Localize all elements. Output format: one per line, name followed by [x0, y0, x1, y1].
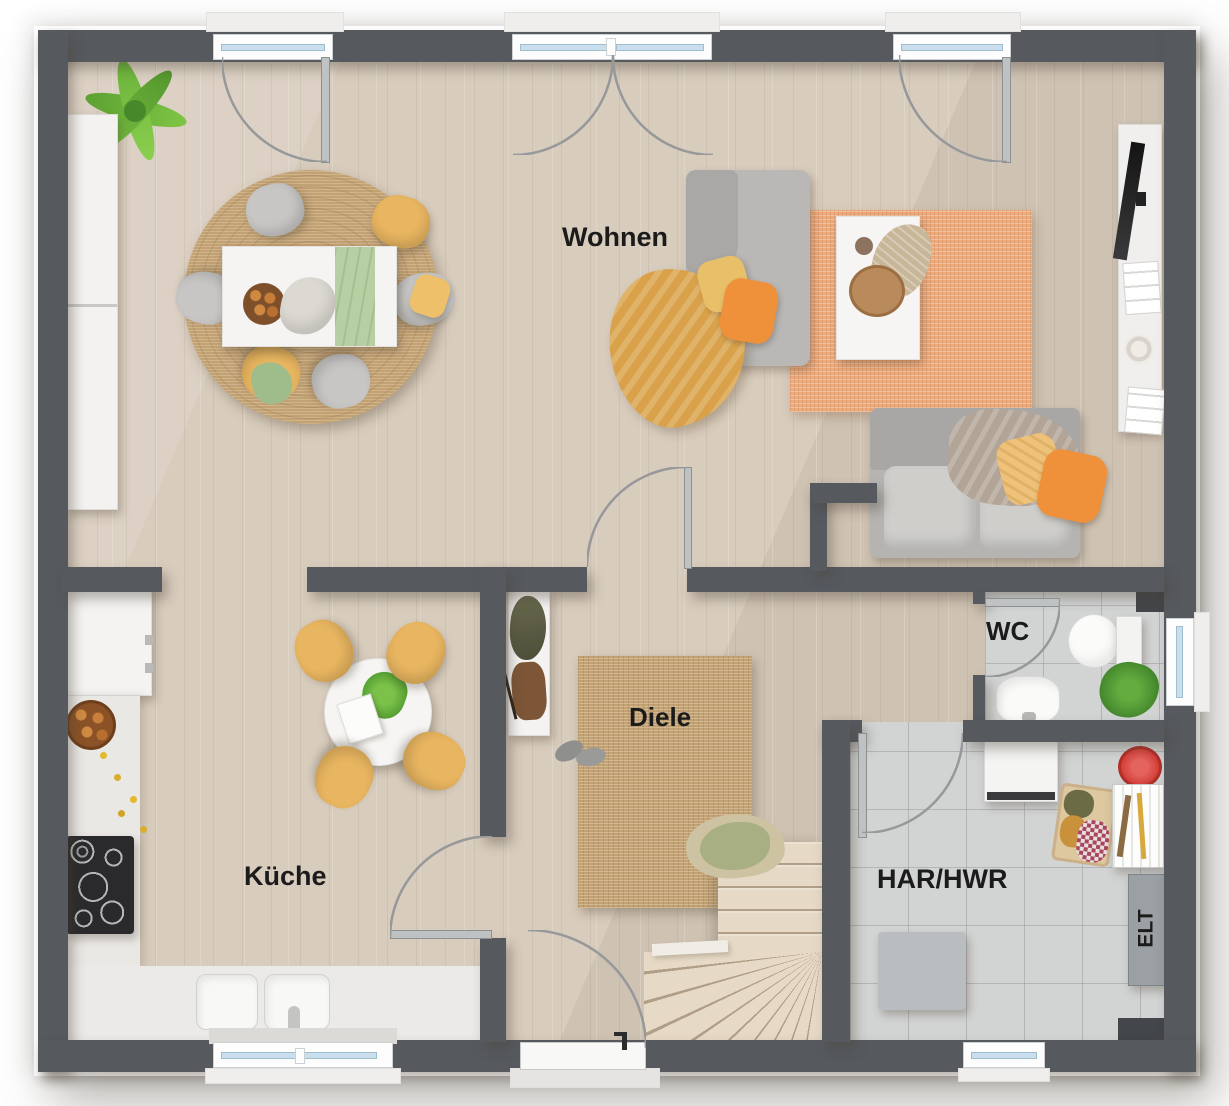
floor-plan: Wohnen Küche Diele WC HAR/HWR ELT	[0, 0, 1229, 1106]
centerpiece-bowl	[243, 283, 285, 325]
window-sill	[504, 12, 720, 32]
sofa	[870, 408, 1080, 558]
wall-kitchen-hall	[480, 567, 506, 837]
tool	[1137, 793, 1147, 859]
window-glass	[971, 1052, 1037, 1059]
tv-mount	[1136, 192, 1146, 206]
room-label-har-hwr: HAR/HWR	[877, 866, 1007, 893]
candle-decor	[1124, 334, 1154, 364]
wall-wohnen-south	[687, 567, 1164, 592]
coffee-table	[836, 216, 920, 360]
wall-cabinet	[66, 114, 118, 510]
hwr-duct	[1118, 1018, 1164, 1042]
cleaning-bucket	[1118, 746, 1162, 788]
wall-wc-west	[973, 592, 985, 604]
window-sill	[885, 12, 1021, 32]
book-stack	[1124, 386, 1166, 435]
wall-kitchen-hall	[480, 938, 506, 1042]
centerpiece-flowers	[276, 273, 339, 339]
table-runner	[335, 247, 375, 346]
wall-hwr-north	[963, 720, 1164, 742]
window-glass	[221, 1052, 297, 1059]
fruit-bowl	[66, 700, 116, 750]
staircase-winder	[644, 952, 822, 1052]
window-mullion	[295, 1048, 305, 1064]
window-sill	[958, 1068, 1050, 1082]
wall-wc-west	[973, 675, 985, 722]
window-glass	[221, 44, 325, 51]
door-swing-arc	[528, 930, 646, 1048]
outer-wall-left	[38, 30, 68, 1072]
outer-wall-right	[1164, 30, 1196, 1072]
tool-shelf	[1112, 784, 1164, 868]
window-glass	[1176, 626, 1183, 698]
window-glass	[901, 44, 1003, 51]
door-swing-arc	[390, 836, 492, 938]
wall-hwr-west	[822, 720, 850, 1042]
cabinet-divider	[67, 304, 117, 307]
vase	[855, 237, 873, 255]
wc-shaft	[1136, 592, 1164, 612]
door-swing-arc	[899, 55, 1007, 162]
fridge-hinge	[145, 635, 153, 645]
window-sill	[206, 12, 344, 32]
door-swing-arc	[222, 57, 327, 162]
dining-table	[222, 246, 397, 347]
entrance-step	[510, 1068, 660, 1088]
wall-wohnen-south	[307, 567, 587, 592]
flower-sprig	[100, 752, 107, 759]
deco-tray	[849, 265, 905, 317]
laundry-basket	[1051, 782, 1119, 867]
room-label-wc: WC	[986, 618, 1029, 644]
window-sill	[205, 1068, 401, 1084]
kitchen-sink	[196, 974, 258, 1030]
window-glass	[616, 44, 704, 51]
room-label-diele: Diele	[629, 704, 691, 730]
fridge	[64, 586, 152, 696]
washer-front-panel	[987, 792, 1055, 800]
window-glass	[301, 1052, 377, 1059]
book-stack	[1122, 261, 1162, 315]
cooktop	[66, 836, 134, 934]
palm-center	[124, 100, 146, 122]
toilet-cistern	[1116, 616, 1142, 666]
wall-wohnen-south	[62, 567, 162, 592]
door-swing-arc	[587, 467, 687, 567]
storage-box	[878, 932, 966, 1010]
door-swing-arc	[613, 55, 713, 155]
room-label-kueche: Küche	[244, 863, 327, 890]
toilet-bowl	[1068, 614, 1120, 668]
door-swing-arc	[513, 55, 613, 155]
washing-machine	[984, 738, 1058, 802]
room-label-wohnen: Wohnen	[562, 224, 668, 251]
room-label-elt: ELT	[1136, 897, 1157, 961]
tool	[1117, 795, 1132, 857]
door-swing-arc	[862, 733, 963, 833]
door-mullion	[606, 38, 616, 56]
fridge-hinge	[145, 663, 153, 673]
window-glass	[520, 44, 608, 51]
window-sill	[1194, 612, 1210, 712]
niche-wall	[810, 483, 877, 503]
laundry-item	[1062, 788, 1096, 820]
